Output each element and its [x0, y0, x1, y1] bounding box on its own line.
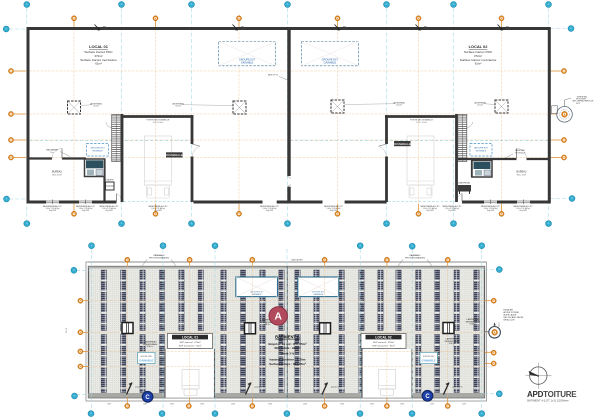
svg-text:GAINABLE: GAINABLE — [422, 358, 436, 362]
svg-text:100x200: 100x200 — [175, 105, 181, 107]
svg-text:1.00 x 2.15 Ht(1m): 1.00 x 2.15 Ht(1m) — [423, 207, 437, 210]
svg-text:100x200: 100x200 — [477, 104, 483, 106]
svg-text:SUA 2m²: SUA 2m² — [147, 345, 154, 348]
svg-text:pente 3 %: pente 3 % — [281, 352, 295, 356]
svg-text:TECHNIQUE: TECHNIQUE — [515, 152, 526, 154]
svg-text:1089: 1089 — [303, 404, 307, 406]
svg-text:1.00 x 2.15 Ht(1m): 1.00 x 2.15 Ht(1m) — [516, 207, 530, 210]
svg-text:PASSERELLE: PASSERELLE — [394, 142, 411, 146]
svg-text:BUREAU: BUREAU — [52, 171, 62, 174]
svg-text:pente 3 %: pente 3 % — [453, 386, 463, 389]
svg-text:METALLIQUE: METALLIQUE — [504, 319, 516, 322]
svg-text:1.00 x 2.15 Ht(1m): 1.00 x 2.15 Ht(1m) — [46, 207, 60, 210]
svg-text:1089: 1089 — [462, 404, 466, 406]
svg-text:INOX: INOX — [576, 103, 580, 105]
svg-text:SORTIE VMC: SORTIE VMC — [577, 96, 588, 98]
svg-text:Ø100: Ø100 — [506, 29, 510, 31]
svg-text:INVISIBLE: INVISIBLE — [476, 151, 487, 153]
svg-text:GROUPE EXT: GROUPE EXT — [474, 148, 489, 150]
svg-text:Régl.PMR: Régl.PMR — [519, 210, 527, 212]
svg-text:LOCAL 02: LOCAL 02 — [469, 44, 489, 49]
svg-text:Régl.PMR: Régl.PMR — [266, 210, 274, 212]
svg-text:SDP entresol : 373m²: SDP entresol : 373m² — [180, 341, 201, 344]
svg-text:1.00 x 2.15 Ht(1m): 1.00 x 2.15 Ht(1m) — [484, 207, 498, 210]
svg-text:1089: 1089 — [231, 404, 235, 406]
svg-text:PASSERELLE: PASSERELLE — [166, 153, 183, 157]
svg-text:Ø100: Ø100 — [103, 29, 107, 31]
svg-text:ESCALIER: ESCALIER — [504, 308, 514, 311]
svg-text:Surface toiture : 877,75m²: Surface toiture : 877,75m² — [269, 362, 306, 366]
svg-text:1089: 1089 — [400, 404, 404, 406]
svg-text:SDP totale : 929m²: SDP totale : 929m² — [274, 346, 300, 350]
svg-text:LOCAL 02: LOCAL 02 — [375, 336, 391, 340]
svg-text:1089: 1089 — [170, 404, 174, 406]
svg-text:1089: 1089 — [370, 404, 374, 406]
svg-text:Régl.PMR: Régl.PMR — [49, 210, 57, 212]
svg-text:GAINABLE: GAINABLE — [313, 293, 324, 296]
svg-text:1.00 x 2.15 Ht(1m): 1.00 x 2.15 Ht(1m) — [79, 207, 93, 210]
svg-text:SUA 2m²: SUA 2m² — [449, 342, 456, 345]
svg-text:RDC 15m²: RDC 15m² — [52, 174, 62, 177]
svg-text:MUR CF 1h: MUR CF 1h — [268, 75, 278, 77]
svg-text:EN TOITURE: EN TOITURE — [576, 99, 586, 101]
svg-text:C: C — [145, 395, 150, 401]
svg-text:Régl.PMR: Régl.PMR — [426, 210, 434, 212]
svg-text:PHOTOVOLTAIQUES: PHOTOVOLTAIQUES — [405, 256, 425, 259]
svg-text:1089: 1089 — [268, 404, 272, 406]
svg-text:CHAUFFE: CHAUFFE — [106, 179, 115, 182]
svg-text:SDP entresol : 373m²: SDP entresol : 373m² — [373, 341, 394, 344]
svg-text:GAINABLE: GAINABLE — [241, 62, 254, 65]
svg-text:GROUPE EXT: GROUPE EXT — [90, 148, 105, 150]
svg-text:1.00 x 2.15 Ht(1m): 1.00 x 2.15 Ht(1m) — [151, 207, 165, 210]
svg-text:SUA 2m²: SUA 2m² — [264, 323, 271, 326]
svg-text:ACCES TOITURE: ACCES TOITURE — [504, 311, 520, 314]
svg-text:Ø100: Ø100 — [424, 29, 428, 31]
svg-text:GAINABLE: GAINABLE — [252, 293, 263, 296]
svg-text:SORTIE VMC: SORTIE VMC — [423, 356, 435, 358]
svg-text:3.00 x 3.50ht: 3.00 x 3.50ht — [153, 121, 164, 124]
svg-text:1.00 x 2.15 Ht(1m): 1.00 x 2.15 Ht(1m) — [327, 207, 341, 210]
svg-text:1089: 1089 — [107, 404, 111, 406]
svg-text:Régl.PMR: Régl.PMR — [82, 210, 90, 212]
svg-text:Régl.PMR: Régl.PMR — [105, 210, 113, 212]
svg-text:pente 3 %: pente 3 % — [331, 386, 341, 389]
svg-text:BATIMENT A (LOT 1+2) 1/200ème: BATIMENT A (LOT 1+2) 1/200ème — [527, 399, 569, 403]
svg-text:100x200: 100x200 — [396, 104, 402, 106]
svg-text:GAINABLE: GAINABLE — [139, 358, 153, 362]
svg-text:61m²: 61m² — [95, 62, 102, 66]
svg-text:1089: 1089 — [430, 404, 434, 406]
svg-text:1.00 x 2.15 Ht(1m): 1.00 x 2.15 Ht(1m) — [102, 207, 116, 210]
svg-text:GAINABLE: GAINABLE — [324, 62, 337, 65]
svg-text:CHAUFFE EAU: CHAUFFE EAU — [458, 182, 471, 185]
svg-text:pente 3 %: pente 3 % — [255, 386, 265, 389]
svg-text:1089: 1089 — [340, 404, 344, 406]
svg-text:RDC 15m²: RDC 15m² — [517, 174, 527, 177]
svg-text:LOCAL 01: LOCAL 01 — [182, 336, 198, 340]
svg-text:LOCAL 01: LOCAL 01 — [89, 44, 109, 49]
svg-text:RAL 7016 AVEC PALIER: RAL 7016 AVEC PALIER — [504, 316, 525, 319]
svg-text:36.00: 36.00 — [66, 327, 68, 333]
svg-text:15m²: 15m² — [50, 151, 54, 154]
svg-text:SDP mezzanine : 91m²: SDP mezzanine : 91m² — [179, 344, 202, 347]
svg-text:1089: 1089 — [143, 404, 147, 406]
svg-text:SORTIE VMC: SORTIE VMC — [140, 356, 152, 358]
svg-text:pente 3 %: pente 3 % — [136, 386, 146, 389]
svg-text:1.00 x 2.15 Ht(1m): 1.00 x 2.15 Ht(1m) — [445, 207, 459, 210]
svg-text:SDP mezzanine : 91m²: SDP mezzanine : 91m² — [372, 344, 395, 347]
svg-text:3.00 x 3.50ht: 3.00 x 3.50ht — [416, 121, 427, 124]
svg-text:61m²: 61m² — [475, 62, 482, 66]
svg-text:100x200: 100x200 — [93, 105, 99, 107]
svg-text:Ø100: Ø100 — [241, 29, 245, 31]
svg-text:APDTOITURE: APDTOITURE — [527, 390, 577, 399]
svg-text:Régl.PMR: Régl.PMR — [487, 210, 495, 212]
svg-text:GROUPE EXT: GROUPE EXT — [312, 291, 326, 293]
svg-text:BACS ACIER: BACS ACIER — [292, 258, 303, 261]
svg-text:Ø100: Ø100 — [343, 29, 347, 31]
svg-text:Régl.PMR: Régl.PMR — [448, 210, 456, 212]
svg-text:BUREAU: BUREAU — [517, 171, 527, 174]
svg-text:A: A — [274, 311, 282, 323]
svg-text:C: C — [425, 394, 430, 400]
svg-text:1089: 1089 — [200, 404, 204, 406]
svg-text:BATIMENT A: BATIMENT A — [275, 335, 300, 340]
svg-text:PHOTOVOLTAIQUES: PHOTOVOLTAIQUES — [149, 256, 169, 259]
svg-text:INVISIBLE: INVISIBLE — [92, 151, 103, 153]
svg-text:SUA 2m²: SUA 2m² — [470, 323, 477, 326]
svg-text:1.00 x 2.15 Ht(1m): 1.00 x 2.15 Ht(1m) — [263, 207, 277, 210]
svg-text:ACIER LAQUE: ACIER LAQUE — [504, 314, 517, 317]
